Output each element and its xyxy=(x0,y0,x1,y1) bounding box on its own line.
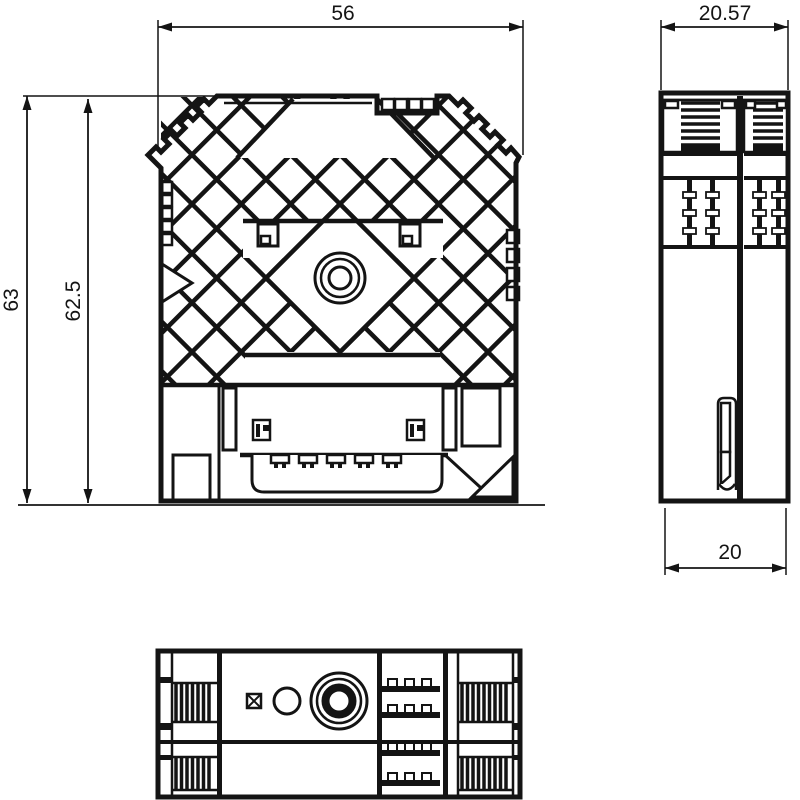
comb-contacts xyxy=(380,679,440,786)
center-screw-boss xyxy=(315,253,365,303)
dim-label-20: 20 xyxy=(718,541,741,564)
top-comb xyxy=(382,99,434,110)
test-hole xyxy=(274,688,300,714)
dim-label-62-5: 62.5 xyxy=(62,281,85,322)
wire-entry-hatch-left xyxy=(172,683,217,790)
square-window-left xyxy=(258,224,278,246)
square-window-right xyxy=(400,224,420,246)
marking-panel xyxy=(247,673,367,729)
screw-head xyxy=(311,673,367,729)
dim-label-63: 63 xyxy=(0,288,23,311)
dimension-front-body-height: 62.5 xyxy=(62,99,93,503)
technical-drawing-canvas: 56 63 62.5 20.57 20 xyxy=(0,0,800,800)
drawing-svg: 56 63 62.5 20.57 20 xyxy=(0,0,800,800)
clip-right xyxy=(407,420,424,440)
clip-left xyxy=(253,420,270,440)
contact-bars xyxy=(683,180,785,245)
clamp-hatch-left xyxy=(681,103,720,145)
din-latch xyxy=(718,398,736,490)
side-view xyxy=(661,93,788,501)
dimension-side-top-width: 20.57 xyxy=(661,2,788,90)
wire-entry-hatch-right xyxy=(458,683,513,790)
dim-label-56: 56 xyxy=(331,2,354,25)
bottom-view xyxy=(158,651,520,797)
dim-label-20-57: 20.57 xyxy=(699,2,752,25)
side-center-divider xyxy=(737,96,743,499)
clamp-hatch-right xyxy=(753,103,783,145)
dimension-side-bottom-width: 20 xyxy=(665,508,786,575)
